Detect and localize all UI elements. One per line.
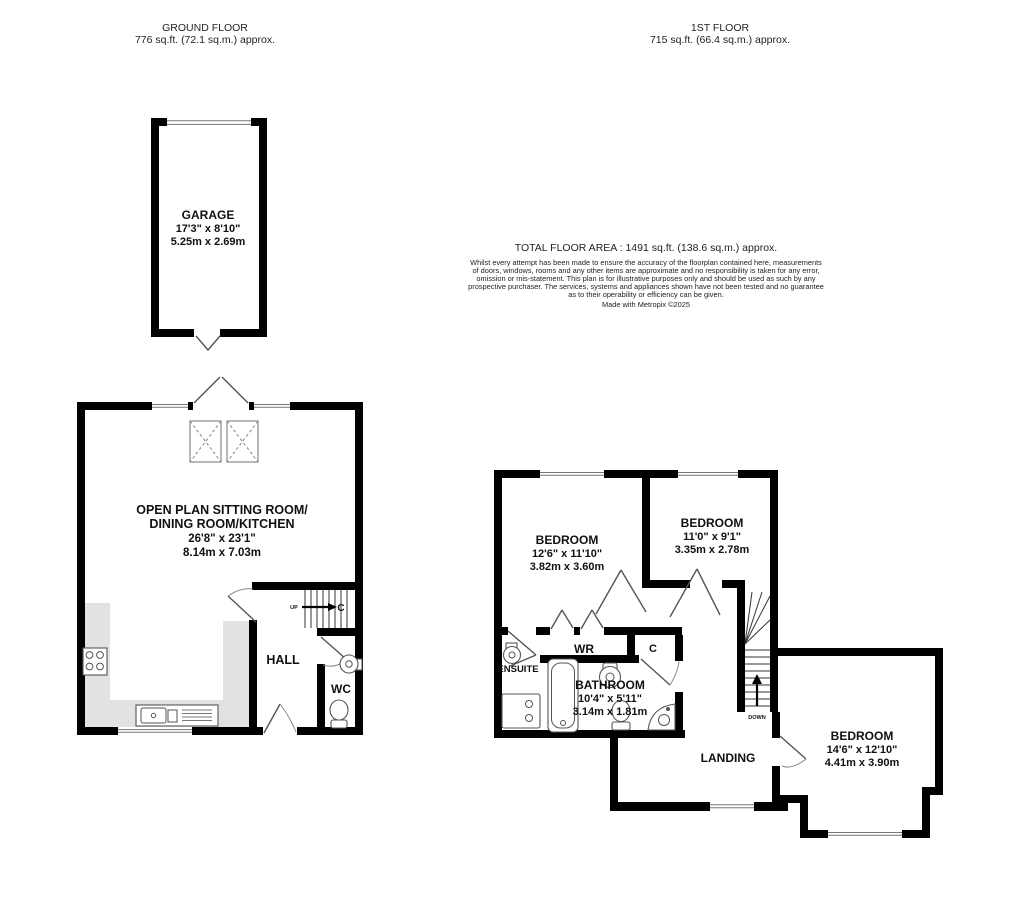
- up-label: UP: [290, 605, 298, 611]
- down-label: DOWN: [748, 715, 765, 721]
- bedroom1-label: BEDROOM: [536, 533, 599, 547]
- open-plan-label-line1: OPEN PLAN SITTING ROOM/: [136, 503, 308, 517]
- down-arrow-icon: [752, 674, 762, 684]
- bathroom-dims-metric: 3.14m x 1.81m: [573, 706, 648, 718]
- open-plan-label-line2: DINING ROOM/KITCHEN: [149, 517, 294, 531]
- up-arrow-icon: [328, 603, 337, 611]
- bedroom2-dims-metric: 3.35m x 2.78m: [675, 544, 750, 556]
- garage-rear-door: [196, 336, 220, 350]
- open-plan-dims-imperial: 26'8" x 23'1": [188, 533, 256, 545]
- window: [118, 727, 192, 735]
- french-doors: [194, 377, 248, 403]
- open-plan-dims-metric: 8.14m x 7.03m: [183, 547, 261, 559]
- ensuite-shower: [502, 694, 540, 728]
- landing-label: LANDING: [701, 751, 756, 765]
- cupboard-label-ground: C: [337, 603, 344, 614]
- hob: [83, 648, 107, 675]
- bedroom2-dims-imperial: 11'0" x 9'1": [683, 531, 741, 543]
- garage-dims-imperial: 17'3" x 8'10": [176, 223, 241, 235]
- cupboard-label-first: C: [649, 643, 657, 655]
- window: [254, 402, 290, 410]
- skylight: [227, 421, 258, 462]
- bathroom-dims-imperial: 10'4" x 5'11": [578, 693, 642, 705]
- wardrobe-doors: [551, 610, 603, 629]
- staircase-down: DOWN: [745, 592, 770, 721]
- skylight: [190, 421, 221, 462]
- floorplan-drawing: GARAGE 17'3" x 8'10" 5.25m x 2.69m: [0, 0, 1020, 914]
- garage-door: [167, 121, 251, 125]
- window: [828, 830, 902, 838]
- ensuite-basin: [504, 643, 521, 664]
- bathtub: [548, 659, 578, 732]
- bedroom3-label: BEDROOM: [831, 729, 894, 743]
- window: [152, 402, 188, 410]
- kitchen-sink: [136, 705, 218, 726]
- first-floor-plan: DOWN: [494, 470, 943, 838]
- garage-dims-metric: 5.25m x 2.69m: [171, 236, 246, 248]
- wc-toilet: [330, 700, 348, 728]
- ensuite-label: ENSUITE: [497, 664, 538, 675]
- window: [678, 470, 738, 478]
- corner-basin: [648, 704, 675, 730]
- hall-door: [228, 589, 256, 622]
- bedroom3-dims-imperial: 14'6" x 12'10": [827, 744, 898, 756]
- bedroom2-label: BEDROOM: [681, 516, 744, 530]
- bathroom-label: BATHROOM: [575, 678, 645, 692]
- hall-label: HALL: [266, 653, 300, 667]
- bedroom1-door: [596, 570, 646, 614]
- front-door: [264, 704, 296, 733]
- window: [540, 470, 604, 478]
- window: [710, 802, 754, 811]
- bedroom1-dims-imperial: 12'6" x 11'10": [532, 548, 602, 560]
- bedroom1-dims-metric: 3.82m x 3.60m: [530, 561, 605, 573]
- bedroom2-door: [670, 569, 720, 617]
- ground-floor-plan: UP OPEN PLAN SITTING ROOM/ DINING ROOM/K…: [77, 377, 363, 735]
- wardrobe-label: WR: [574, 642, 594, 656]
- wc-label: WC: [331, 682, 351, 696]
- bathroom-door: [641, 659, 679, 685]
- garage-label: GARAGE: [182, 208, 235, 222]
- bedroom3-door: [780, 736, 806, 767]
- bedroom3-dims-metric: 4.41m x 3.90m: [825, 757, 900, 769]
- garage-plan: GARAGE 17'3" x 8'10" 5.25m x 2.69m: [151, 118, 267, 350]
